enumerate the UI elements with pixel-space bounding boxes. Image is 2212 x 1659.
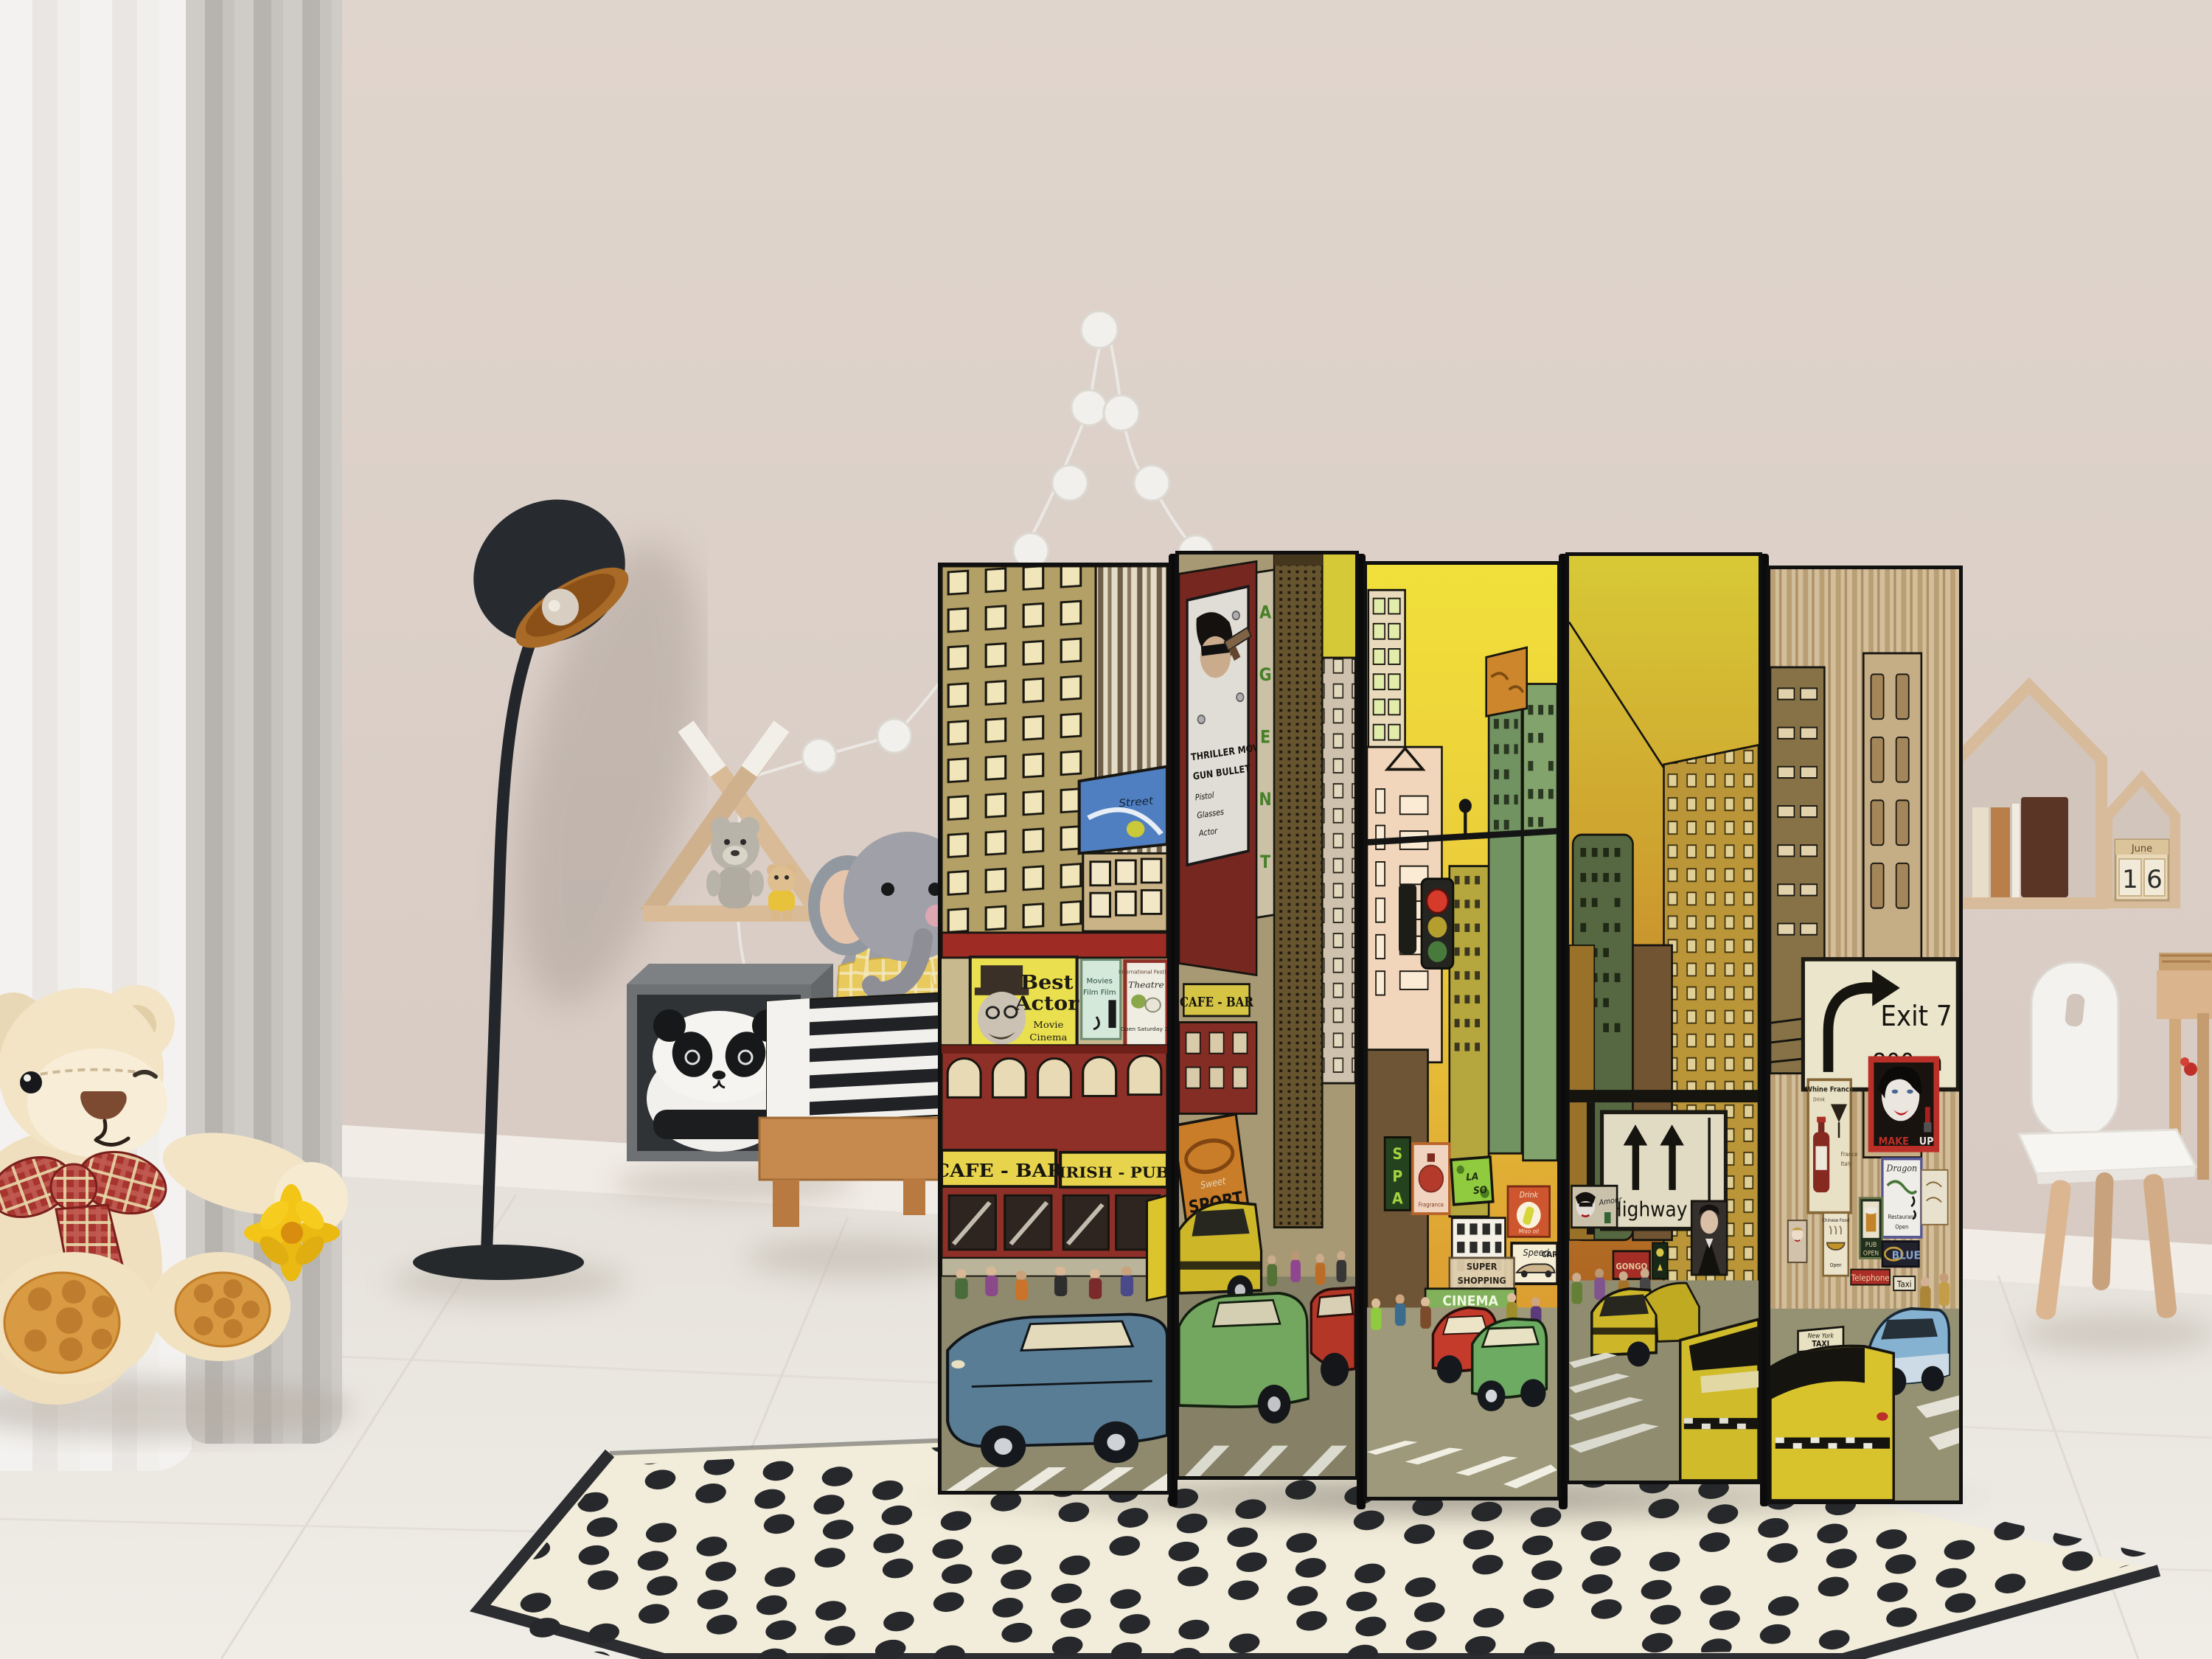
spa-letter: A [1392,1190,1403,1208]
yellow-taxi [1179,1202,1262,1306]
cafe-bar-sign-2: CAFE - BAR [1180,994,1253,1010]
pub-l2: OPEN [1863,1249,1879,1257]
theatre-top: International Festival [1119,970,1167,975]
teddy-right-foot [149,1252,291,1361]
drink-l1: Drink [1520,1192,1539,1200]
makeup-l2: UP [1919,1135,1934,1148]
orange-billboard [1486,647,1527,716]
kids-furniture [2006,951,2212,1342]
spa-letter: S [1392,1145,1402,1163]
agent-letter: T [1260,852,1271,872]
dragon-open: Open [1895,1223,1908,1230]
green-skyscrapers [1486,647,1557,1161]
cream-tower [1368,590,1405,765]
lamp-base [413,1245,584,1280]
super-l2: SHOPPING [1458,1276,1506,1287]
spa-sign: S P A [1385,1137,1410,1210]
dragon-title: Dragon [1886,1163,1918,1174]
chair-leg [2035,1179,2072,1321]
bed [752,826,951,1298]
green-hatchback [1179,1293,1308,1424]
chinese-open: Open [1830,1263,1842,1268]
wine-poster: Whine France Drink France Italy [1806,1079,1858,1212]
divider-panel-2: THRILLER MOVIE GUN BULLET Pistol Glasses… [1175,551,1359,1480]
drink-l2: Miso oil [1519,1228,1540,1234]
divider-panel-3: S P A Fragrance LA SO Drink [1363,561,1561,1500]
speed-car-billboard: Speed CAR [1512,1243,1557,1284]
taxi-sliver [1147,1195,1167,1300]
super-l1: SUPER [1467,1262,1498,1273]
theatre-poster: International Festival Theatre Open Satu… [1119,961,1167,1053]
divider-panel-1: Street Best Actor Movie Cinema Adventure [938,563,1171,1495]
fragrance-label: Fragrance [1419,1201,1444,1208]
ny-taxi-l1: New York [1808,1332,1834,1340]
theatre-bottom: Open Saturday 22 [1121,1026,1167,1032]
wine-france: France [1841,1150,1858,1157]
cream-building [1319,658,1355,1083]
calendar-day-ones: 6 [2146,865,2163,894]
street-sign-blue: Street [1079,767,1167,854]
laso-l2: SO [1473,1183,1488,1196]
spa-letter: P [1392,1167,1402,1185]
star-sign [1652,1243,1668,1279]
block-calendar: June 1 6 [2115,840,2168,900]
pub-sign: PUB OPEN [1860,1198,1882,1259]
cafe-building: CAFE - BAR IRISH - PUB [942,1046,1167,1259]
brick-windows [1179,1022,1256,1113]
dragon-sub: Restaurant [1888,1214,1916,1220]
best-actor-l2: Actor [1014,992,1079,1015]
best-actor-l4: Cinema [1029,1032,1068,1043]
divider-panel-4: Highway Amour GONGO [1565,552,1762,1484]
agent-letter: E [1260,727,1270,748]
green-sedan [1472,1319,1547,1411]
calendar-month: June [2131,844,2152,855]
best-actor-l3: Movie [1033,1020,1063,1030]
chinese-food-poster: Chinese Food Open [1822,1213,1849,1276]
blue-label: BLUE [1892,1250,1921,1262]
taxi-label: Taxi [1896,1279,1912,1290]
makeup-poster: MAKE UP [1871,1060,1937,1150]
perfume-poster: Fragrance [1413,1144,1450,1214]
theatre-title: Theatre [1128,980,1164,990]
drink-poster: Drink Miso oil [1508,1186,1550,1237]
telephone-sign: Telephone [1851,1270,1890,1285]
agent-letter: N [1259,790,1271,810]
chair-seat [2019,1130,2196,1174]
movies-l2: Film Film [1083,989,1116,997]
laso-l1: LA [1466,1170,1479,1183]
calendar-day-tens: 1 [2122,865,2138,894]
makeup-l1: MAKE [1879,1135,1909,1148]
exit-label: Exit 7 [1880,999,1952,1032]
man-poster [1691,1201,1727,1275]
irish-pub-sign: IRISH - PUB [1059,1164,1167,1181]
best-actor-l1: Best [1020,971,1074,994]
blue-car [947,1315,1167,1467]
telephone-label: Telephone [1851,1273,1890,1283]
divider-panel-5: Exit 7 800 m MAKE UP Whine France Drink [1767,566,1963,1504]
car-label: CAR [1542,1251,1557,1260]
taxi-storefront-sign: Taxi [1893,1276,1915,1290]
movies-poster: Movies Film Film [1082,960,1121,1039]
teddy-bear [0,966,398,1453]
chinese-title: Chinese Food [1822,1219,1849,1223]
agent-letter: G [1259,664,1272,685]
dragon-poster: Dragon Restaurant Open [1882,1159,1921,1237]
pub-l1: PUB [1865,1241,1877,1249]
tan-building [942,566,1099,935]
movies-l1: Movies [1086,978,1112,986]
room-divider: Street Best Actor Movie Cinema Adventure [938,549,1964,1517]
teddy-eye [20,1071,42,1093]
chair-back [2031,962,2118,1138]
bed-sheet-fold [767,998,810,1124]
bed-frame [759,1118,951,1180]
agent-vertical-sign: A G E N T [1256,570,1274,918]
bed-leg [773,1180,799,1227]
wine-drink: Drink [1813,1097,1825,1102]
laso-sign: LA SO [1451,1157,1493,1205]
kids-room-photo: June 1 6 [0,0,2212,1659]
house-shelves: June 1 6 [1939,675,2194,918]
amour-poster: Amour [1571,1186,1623,1228]
cafe-bar-sign: CAFE - BAR [942,1161,1064,1182]
wine-italy: Italy [1841,1161,1852,1167]
agent-letter: A [1259,602,1271,623]
super-shopping-sign: SUPER SHOPPING [1450,1258,1514,1289]
blue-sign: BLUE [1882,1242,1921,1267]
wine-title: Whine France [1806,1086,1854,1094]
big-taxi-front [1680,1319,1759,1481]
